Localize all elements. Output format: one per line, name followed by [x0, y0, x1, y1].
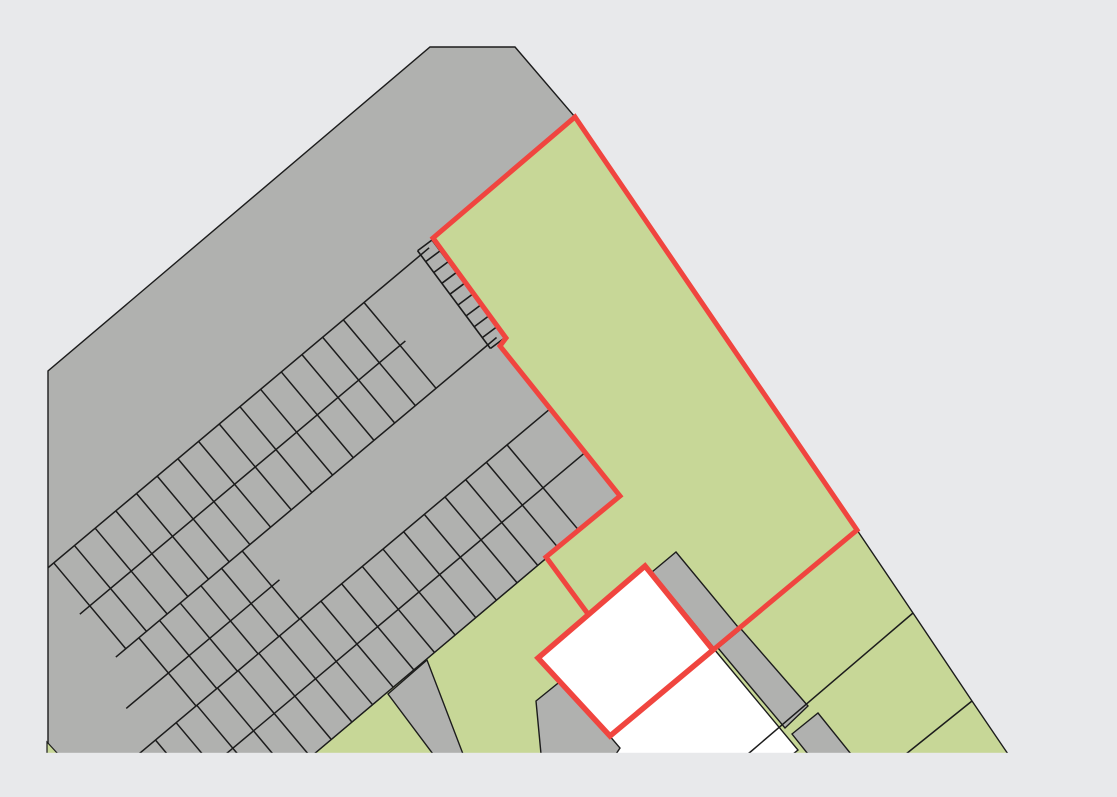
bottom-margin	[0, 753, 1117, 797]
cadastral-map	[0, 0, 1117, 797]
map-stage	[0, 0, 1117, 797]
